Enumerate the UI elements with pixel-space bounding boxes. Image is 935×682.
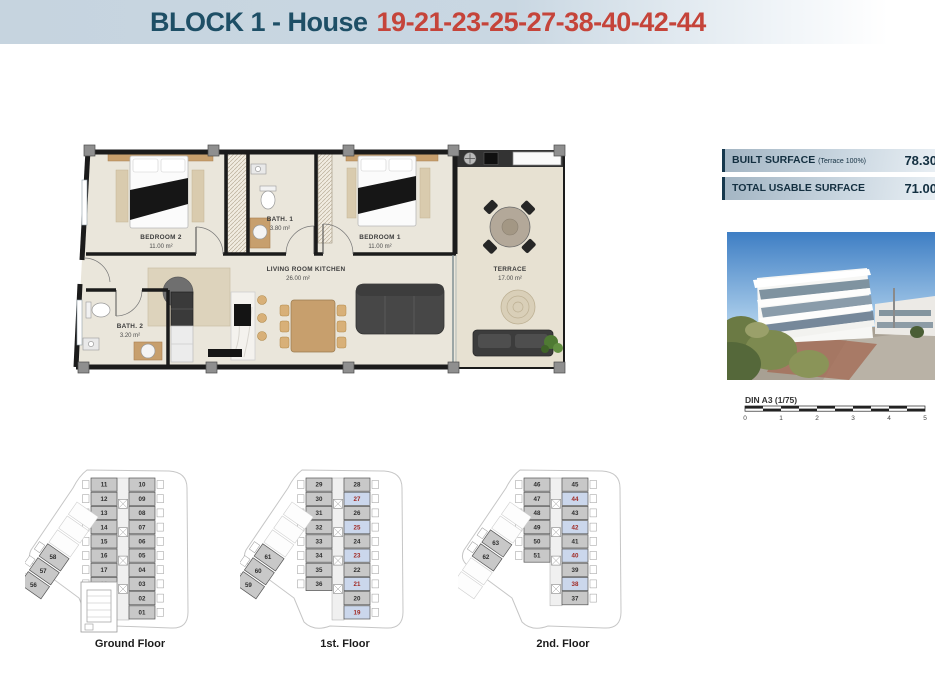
unit-number: 31 [316, 510, 323, 517]
balcony [590, 594, 597, 602]
room-label-bedroom2: BEDROOM 2 [140, 234, 182, 241]
unit-number: 08 [139, 510, 146, 517]
balcony [157, 509, 164, 517]
built-surface-sublabel: (Terrace 100%) [818, 158, 866, 165]
unit-number: 13 [101, 510, 108, 517]
balcony [157, 552, 164, 560]
svg-text:5: 5 [923, 415, 927, 422]
window [82, 180, 87, 225]
unit-number: 28 [354, 482, 361, 489]
unit-number: 15 [101, 539, 108, 546]
room-label-living: LIVING ROOM KITCHEN [267, 266, 346, 273]
balcony [590, 481, 597, 489]
terrace-kitchen-strip [455, 150, 564, 167]
small-tree [910, 326, 924, 338]
unit-number: 43 [572, 510, 579, 517]
unit-number: 40 [572, 553, 579, 560]
unit-number: 02 [139, 595, 146, 602]
unit-number: 45 [572, 482, 579, 489]
balcony [372, 509, 379, 517]
unit-number: 12 [101, 496, 108, 503]
unit-number: 38 [572, 581, 579, 588]
unit-number: 34 [316, 553, 323, 560]
page: BLOCK 1 - House19-21-23-25-27-38-40-42-4… [0, 0, 935, 682]
unit-number: 27 [354, 496, 361, 503]
balcony [298, 580, 305, 588]
svg-text:2: 2 [815, 415, 819, 422]
room-area-bath1: 3.80 m² [270, 226, 290, 232]
balcony [590, 509, 597, 517]
balcony [590, 580, 597, 588]
unit-number: 42 [572, 524, 579, 531]
scale-bar-segments [745, 406, 925, 411]
balcony [372, 495, 379, 503]
unit-number: 33 [316, 539, 323, 546]
room-area-bath2: 3.20 m² [120, 333, 140, 339]
wardrobe-bedroom1-hatch [318, 153, 332, 243]
unit-number: 11 [101, 482, 108, 489]
unit-number: 29 [316, 482, 323, 489]
page-title: BLOCK 1 - House19-21-23-25-27-38-40-42-4… [150, 7, 706, 38]
svg-text:1: 1 [779, 415, 783, 422]
unit-number: 21 [354, 581, 361, 588]
balcony [372, 608, 379, 616]
unit-number: 51 [534, 553, 541, 560]
unit-number: 60 [255, 568, 262, 575]
unit-number: 24 [354, 539, 361, 546]
built-surface-row: BUILT SURFACE (Terrace 100%) 78.30 [722, 149, 935, 172]
balcony [372, 566, 379, 574]
tv [208, 349, 242, 357]
balcony [157, 580, 164, 588]
balcony [83, 495, 90, 503]
unit-number: 01 [139, 610, 146, 617]
room-label-bath1: BATH. 1 [267, 216, 294, 223]
sofa [356, 284, 444, 334]
balcony [157, 495, 164, 503]
unit-number: 39 [572, 567, 579, 574]
balcony [157, 594, 164, 602]
balcony [298, 552, 305, 560]
second-floor-keyplan: 4647484950514544434241403938376362 2nd. … [458, 466, 668, 658]
balcony [590, 537, 597, 545]
unit-number: 10 [139, 482, 146, 489]
unit-number: 46 [534, 482, 541, 489]
second-floor-map: 4647484950514544434241403938376362 [458, 466, 668, 638]
unit-number: 35 [316, 567, 323, 574]
balcony [298, 566, 305, 574]
balcony [372, 580, 379, 588]
balcony [83, 552, 90, 560]
balcony [516, 481, 523, 489]
scale-bar-ticks: 0 1 2 3 4 5 [743, 415, 927, 422]
unit-number: 04 [139, 567, 146, 574]
scale-bar: DIN A3 (1/75) 0 1 2 3 4 5 [743, 394, 935, 424]
unit-number: 37 [572, 595, 579, 602]
unit-number: 23 [354, 553, 361, 560]
first-floor-keyplan: 2930313233343536282726252423222120196160… [240, 466, 450, 658]
balcony [157, 481, 164, 489]
unit-number: 57 [40, 568, 47, 575]
room-label-terrace: TERRACE [494, 266, 527, 273]
balcony [590, 566, 597, 574]
balcony [372, 594, 379, 602]
wardrobe-hall-hatch [228, 153, 247, 253]
balcony [157, 523, 164, 531]
unit-number: 44 [572, 496, 579, 503]
unit-number: 03 [139, 581, 146, 588]
balcony [83, 481, 90, 489]
svg-text:4: 4 [887, 415, 891, 422]
built-surface-label: BUILT SURFACE [732, 154, 815, 166]
balcony [590, 552, 597, 560]
room-area-terrace: 17.00 m² [498, 276, 522, 282]
balcony [372, 552, 379, 560]
balcony [590, 523, 597, 531]
first-floor-map: 2930313233343536282726252423222120196160… [240, 466, 450, 638]
built-surface-value: 78.30 [904, 153, 935, 168]
balcony [298, 495, 305, 503]
balcony [372, 481, 379, 489]
balcony [590, 495, 597, 503]
unit-number: 58 [50, 554, 57, 561]
second-floor-label: 2nd. Floor [458, 638, 668, 650]
usable-surface-label: TOTAL USABLE SURFACE [732, 182, 865, 194]
unit-number: 49 [534, 524, 541, 531]
balcony [372, 523, 379, 531]
ground-floor-label: Ground Floor [25, 638, 235, 650]
unit-number: 05 [139, 553, 146, 560]
balcony [157, 566, 164, 574]
unit-number: 26 [354, 510, 361, 517]
diagonal-wing: 6362 [458, 497, 531, 598]
room-label-bedroom1: BEDROOM 1 [359, 234, 401, 241]
window [77, 300, 82, 345]
header-band: BLOCK 1 - House19-21-23-25-27-38-40-42-4… [0, 0, 935, 44]
unit-number: 63 [492, 540, 499, 547]
unit-number: 19 [354, 610, 361, 617]
balcony [157, 608, 164, 616]
unit-number: 56 [30, 582, 37, 589]
unit-number: 50 [534, 539, 541, 546]
balcony [516, 495, 523, 503]
room-area-bedroom2: 11.00 m² [149, 244, 172, 250]
unit-number: 14 [101, 524, 108, 531]
unit-number: 47 [534, 496, 541, 503]
unit-number: 07 [139, 524, 146, 531]
balcony [157, 537, 164, 545]
unit-number: 30 [316, 496, 323, 503]
apartment-floor-plan: BEDROOM 2 BATH. 1 BEDROOM 1 LIVING ROOM … [58, 142, 643, 390]
unit-number: 61 [265, 554, 272, 561]
unit-number: 22 [354, 567, 361, 574]
unit-number: 41 [572, 539, 579, 546]
svg-text:0: 0 [743, 415, 747, 422]
unit-number: 09 [139, 496, 146, 503]
first-floor-label: 1st. Floor [240, 638, 450, 650]
unit-number: 20 [354, 595, 361, 602]
terrace-dining [482, 199, 536, 254]
balcony [83, 566, 90, 574]
balcony [372, 537, 379, 545]
balcony [516, 552, 523, 560]
lamp-post [893, 288, 895, 328]
unit-number: 48 [534, 510, 541, 517]
usable-surface-row: TOTAL USABLE SURFACE 71.00 [722, 177, 935, 200]
unit-number: 59 [245, 582, 252, 589]
building-photo [727, 232, 935, 380]
title-block: BLOCK 1 - House [150, 7, 368, 37]
unit-number: 36 [316, 581, 323, 588]
title-house-numbers: 19-21-23-25-27-38-40-42-44 [377, 7, 706, 37]
unit-number: 17 [101, 567, 108, 574]
room-area-living: 26.00 m² [286, 276, 310, 282]
unit-number: 16 [101, 553, 108, 560]
unit-number: 06 [139, 539, 146, 546]
room-label-bath2: BATH. 2 [117, 323, 144, 330]
room-area-bedroom1: 11.00 m² [368, 244, 391, 250]
balcony [298, 481, 305, 489]
unit-number: 62 [483, 554, 490, 561]
garage-outline [81, 582, 117, 632]
svg-text:3: 3 [851, 415, 855, 422]
usable-surface-value: 71.00 [904, 181, 935, 196]
scale-bar-label: DIN A3 (1/75) [745, 395, 797, 405]
ground-floor-map: 1112131415161718100908070605040302015857… [25, 466, 235, 638]
ground-floor-keyplan: 1112131415161718100908070605040302015857… [25, 466, 235, 658]
unit-number: 25 [354, 524, 361, 531]
unit-number: 32 [316, 524, 323, 531]
